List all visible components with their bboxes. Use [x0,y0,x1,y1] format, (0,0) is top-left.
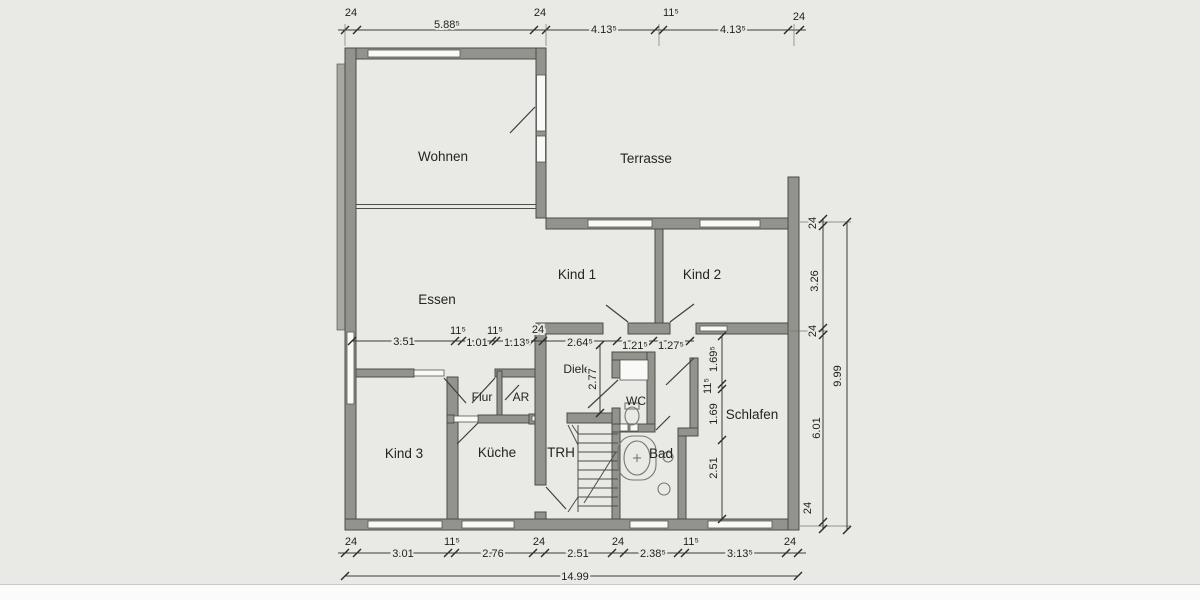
wall [690,358,698,430]
window [588,220,652,227]
dim-value: 2.76 [482,548,503,560]
window [368,521,442,528]
photo-bottom-margin [0,584,1200,600]
dim-value: 11⁵ [683,536,699,548]
dim-value: 24 [533,536,545,548]
dim-value: 24 [802,502,814,514]
window [537,136,546,162]
dim-value: 4.13⁵ [591,24,617,36]
wall [345,48,356,530]
dim-value: 2.51 [708,457,720,478]
dimension-top: 24 5.88⁵ 24 4.13⁵ 11⁵ 4.13⁵ 24 [338,7,806,46]
dim-value: 1.21⁵ [622,340,648,352]
stair-winder [568,497,578,512]
dim-value: 4.13⁵ [720,24,746,36]
window [368,50,460,57]
dim-value: 24 [612,536,624,548]
room-label-bad: Bad [649,446,673,461]
floorplan-page: Wohnen Terrasse Essen Kind 1 Kind 2 Kind… [0,0,1200,600]
dim-value: 1.01 [466,337,487,349]
dim-value: 3.01 [392,548,413,560]
door-leaf [457,423,478,444]
stair-winder [568,425,578,445]
stair-winder [572,425,578,434]
door-leaf [670,304,694,322]
dimension-diele: 2.77 [587,341,604,417]
room-label-wohnen: Wohnen [418,149,468,164]
wall [655,229,663,323]
room-label-trh: TRH [547,445,575,460]
door-leaf [656,416,670,430]
dim-value: 5.88⁵ [434,19,460,31]
dim-value: 24 [793,11,805,23]
wall [536,48,546,218]
wall [678,428,698,436]
wohnen-essen-divider [356,205,536,209]
dim-value: 1.13⁵ [504,337,530,349]
dim-value: 24 [345,536,357,548]
dimension-bottom: 24 3.01 11⁵ 2.76 24 2.51 24 2.38⁵ 11⁵ 3.… [338,536,806,583]
dim-value: 24 [807,217,819,229]
dim-value: 1.69 [708,403,720,424]
wall [447,377,458,519]
dim-value: 24 [532,324,544,336]
door-frame [700,326,727,331]
dim-value: 11⁵ [663,7,679,19]
dim-value: 1.69⁵ [708,346,720,372]
window [462,521,514,528]
room-label-essen: Essen [418,292,456,307]
window [630,521,668,528]
window [708,521,772,528]
door-frame [414,370,444,376]
dim-value: 2.77 [587,368,599,389]
dim-value: 24 [534,7,546,19]
door-leaf [606,305,628,322]
wall [678,436,686,519]
dim-value: 6.01 [811,417,823,438]
toilet-icon [625,407,639,425]
room-label-kueche: Küche [478,445,516,460]
wall [356,369,414,377]
room-label-ar: AR [513,390,530,404]
dim-value: 2.38⁵ [640,548,666,560]
sink-icon [658,483,670,495]
dim-value: 24 [807,325,819,337]
dim-value: 24 [345,7,357,19]
room-label-kind3: Kind 3 [385,446,423,461]
wall [497,371,502,415]
door-leaf [510,107,535,133]
washbasin [620,424,628,431]
wall [535,334,546,485]
window [700,220,760,227]
dim-value: 11⁵ [444,536,460,548]
wall [535,512,546,519]
dim-value: 3.26 [809,270,821,291]
door-frame [454,416,478,422]
dim-value: 11⁵ [450,325,466,337]
dim-value: 11⁵ [487,325,503,337]
dim-value: 9.99 [832,365,844,386]
dimension-schlafen: 1.69⁵ 11⁵ 1.69 2.51 [702,332,726,523]
floorplan-drawing: Wohnen Terrasse Essen Kind 1 Kind 2 Kind… [0,0,1200,600]
room-label-terrasse: Terrasse [620,151,672,166]
dim-value: 3.13⁵ [727,548,753,560]
shower [620,360,648,380]
room-label-kind1: Kind 1 [558,267,596,282]
dim-value: 11⁵ [702,378,714,394]
dim-value: 1.27⁵ [658,340,684,352]
room-label-schlafen: Schlafen [726,407,779,422]
dim-value: 24 [784,536,796,548]
room-label-kind2: Kind 2 [683,267,721,282]
room-label-flur: Flur [472,390,493,404]
stair-rail [584,452,616,503]
dim-total: 14.99 [561,571,589,583]
terrace-door-opening [537,75,546,131]
dim-value: 2.64⁵ [567,337,593,349]
wall [788,177,799,530]
wall [447,415,454,423]
staircase [568,425,618,512]
wall [536,323,603,334]
dim-value: 2.51 [567,548,588,560]
wall [628,323,670,334]
dim-value: 3.51 [393,336,414,348]
room-label-wc: WC [626,394,646,408]
door-leaf [546,487,566,509]
